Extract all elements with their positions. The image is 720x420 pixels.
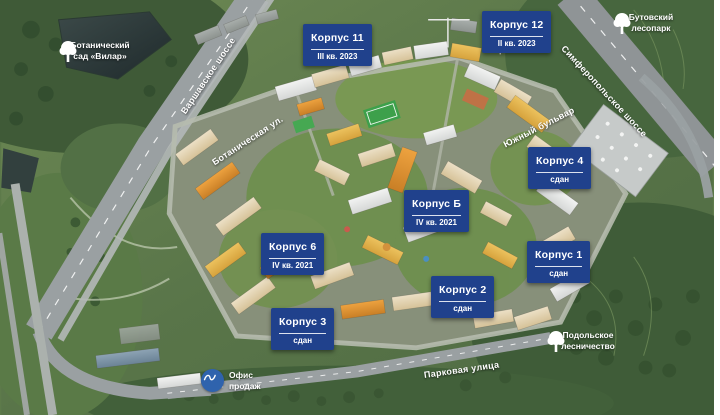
corpus-4-label[interactable]: Корпус 4 сдан [528, 147, 591, 189]
corpus-name: Корпус 3 [279, 316, 326, 328]
park-label-line: Подольское [563, 330, 614, 340]
park-label-line: Бутовский [629, 12, 674, 22]
corpus-name: Корпус Б [412, 198, 461, 210]
corpus-name: Корпус 2 [439, 284, 486, 296]
corpus-status: сдан [535, 266, 582, 279]
corpus-name: Корпус 4 [536, 155, 583, 167]
park-label-line: сад «Вилар» [73, 51, 126, 61]
park-butovsky: Бутовский лесопарк [612, 12, 690, 35]
corpus-b-label[interactable]: Корпус Б IV кв. 2021 [404, 190, 469, 232]
tree-icon [546, 330, 566, 354]
corpus-11-label[interactable]: Корпус 11 III кв. 2023 [303, 24, 372, 66]
tree-icon [612, 12, 632, 36]
corpus-6-label[interactable]: Корпус 6 IV кв. 2021 [261, 233, 324, 275]
corpus-status: II кв. 2023 [490, 36, 543, 49]
corpus-3-label[interactable]: Корпус 3 сдан [271, 308, 334, 350]
developer-logo-icon [201, 369, 224, 392]
genplan-screenshot: Корпус 11 III кв. 2023 Корпус 12 II кв. … [0, 0, 720, 420]
corpus-2-label[interactable]: Корпус 2 сдан [431, 276, 494, 318]
corpus-name: Корпус 11 [311, 32, 364, 44]
tree-icon [58, 40, 78, 64]
sales-office[interactable]: Офис продаж [201, 369, 261, 392]
office-label-line: продаж [229, 381, 261, 391]
corpus-name: Корпус 1 [535, 249, 582, 261]
office-label-line: Офис [229, 370, 253, 380]
corpus-status: III кв. 2023 [311, 49, 364, 62]
park-label-line: Ботанический [70, 40, 129, 50]
corpus-name: Корпус 12 [490, 19, 543, 31]
park-label-line: лесопарк [631, 23, 670, 33]
corpus-12-label[interactable]: Корпус 12 II кв. 2023 [482, 11, 551, 53]
corpus-status: IV кв. 2021 [412, 215, 461, 228]
corpus-status: сдан [279, 333, 326, 346]
park-vilar: Ботанический сад «Вилар» [58, 40, 142, 63]
corpus-status: сдан [536, 172, 583, 185]
corpus-status: IV кв. 2021 [269, 258, 316, 271]
corpus-1-label[interactable]: Корпус 1 сдан [527, 241, 590, 283]
park-podolskoe: Подольское лесничество [546, 330, 630, 353]
corpus-name: Корпус 6 [269, 241, 316, 253]
map-canvas: Корпус 11 III кв. 2023 Корпус 12 II кв. … [0, 0, 714, 415]
park-label-line: лесничество [561, 341, 615, 351]
corpus-status: сдан [439, 301, 486, 314]
